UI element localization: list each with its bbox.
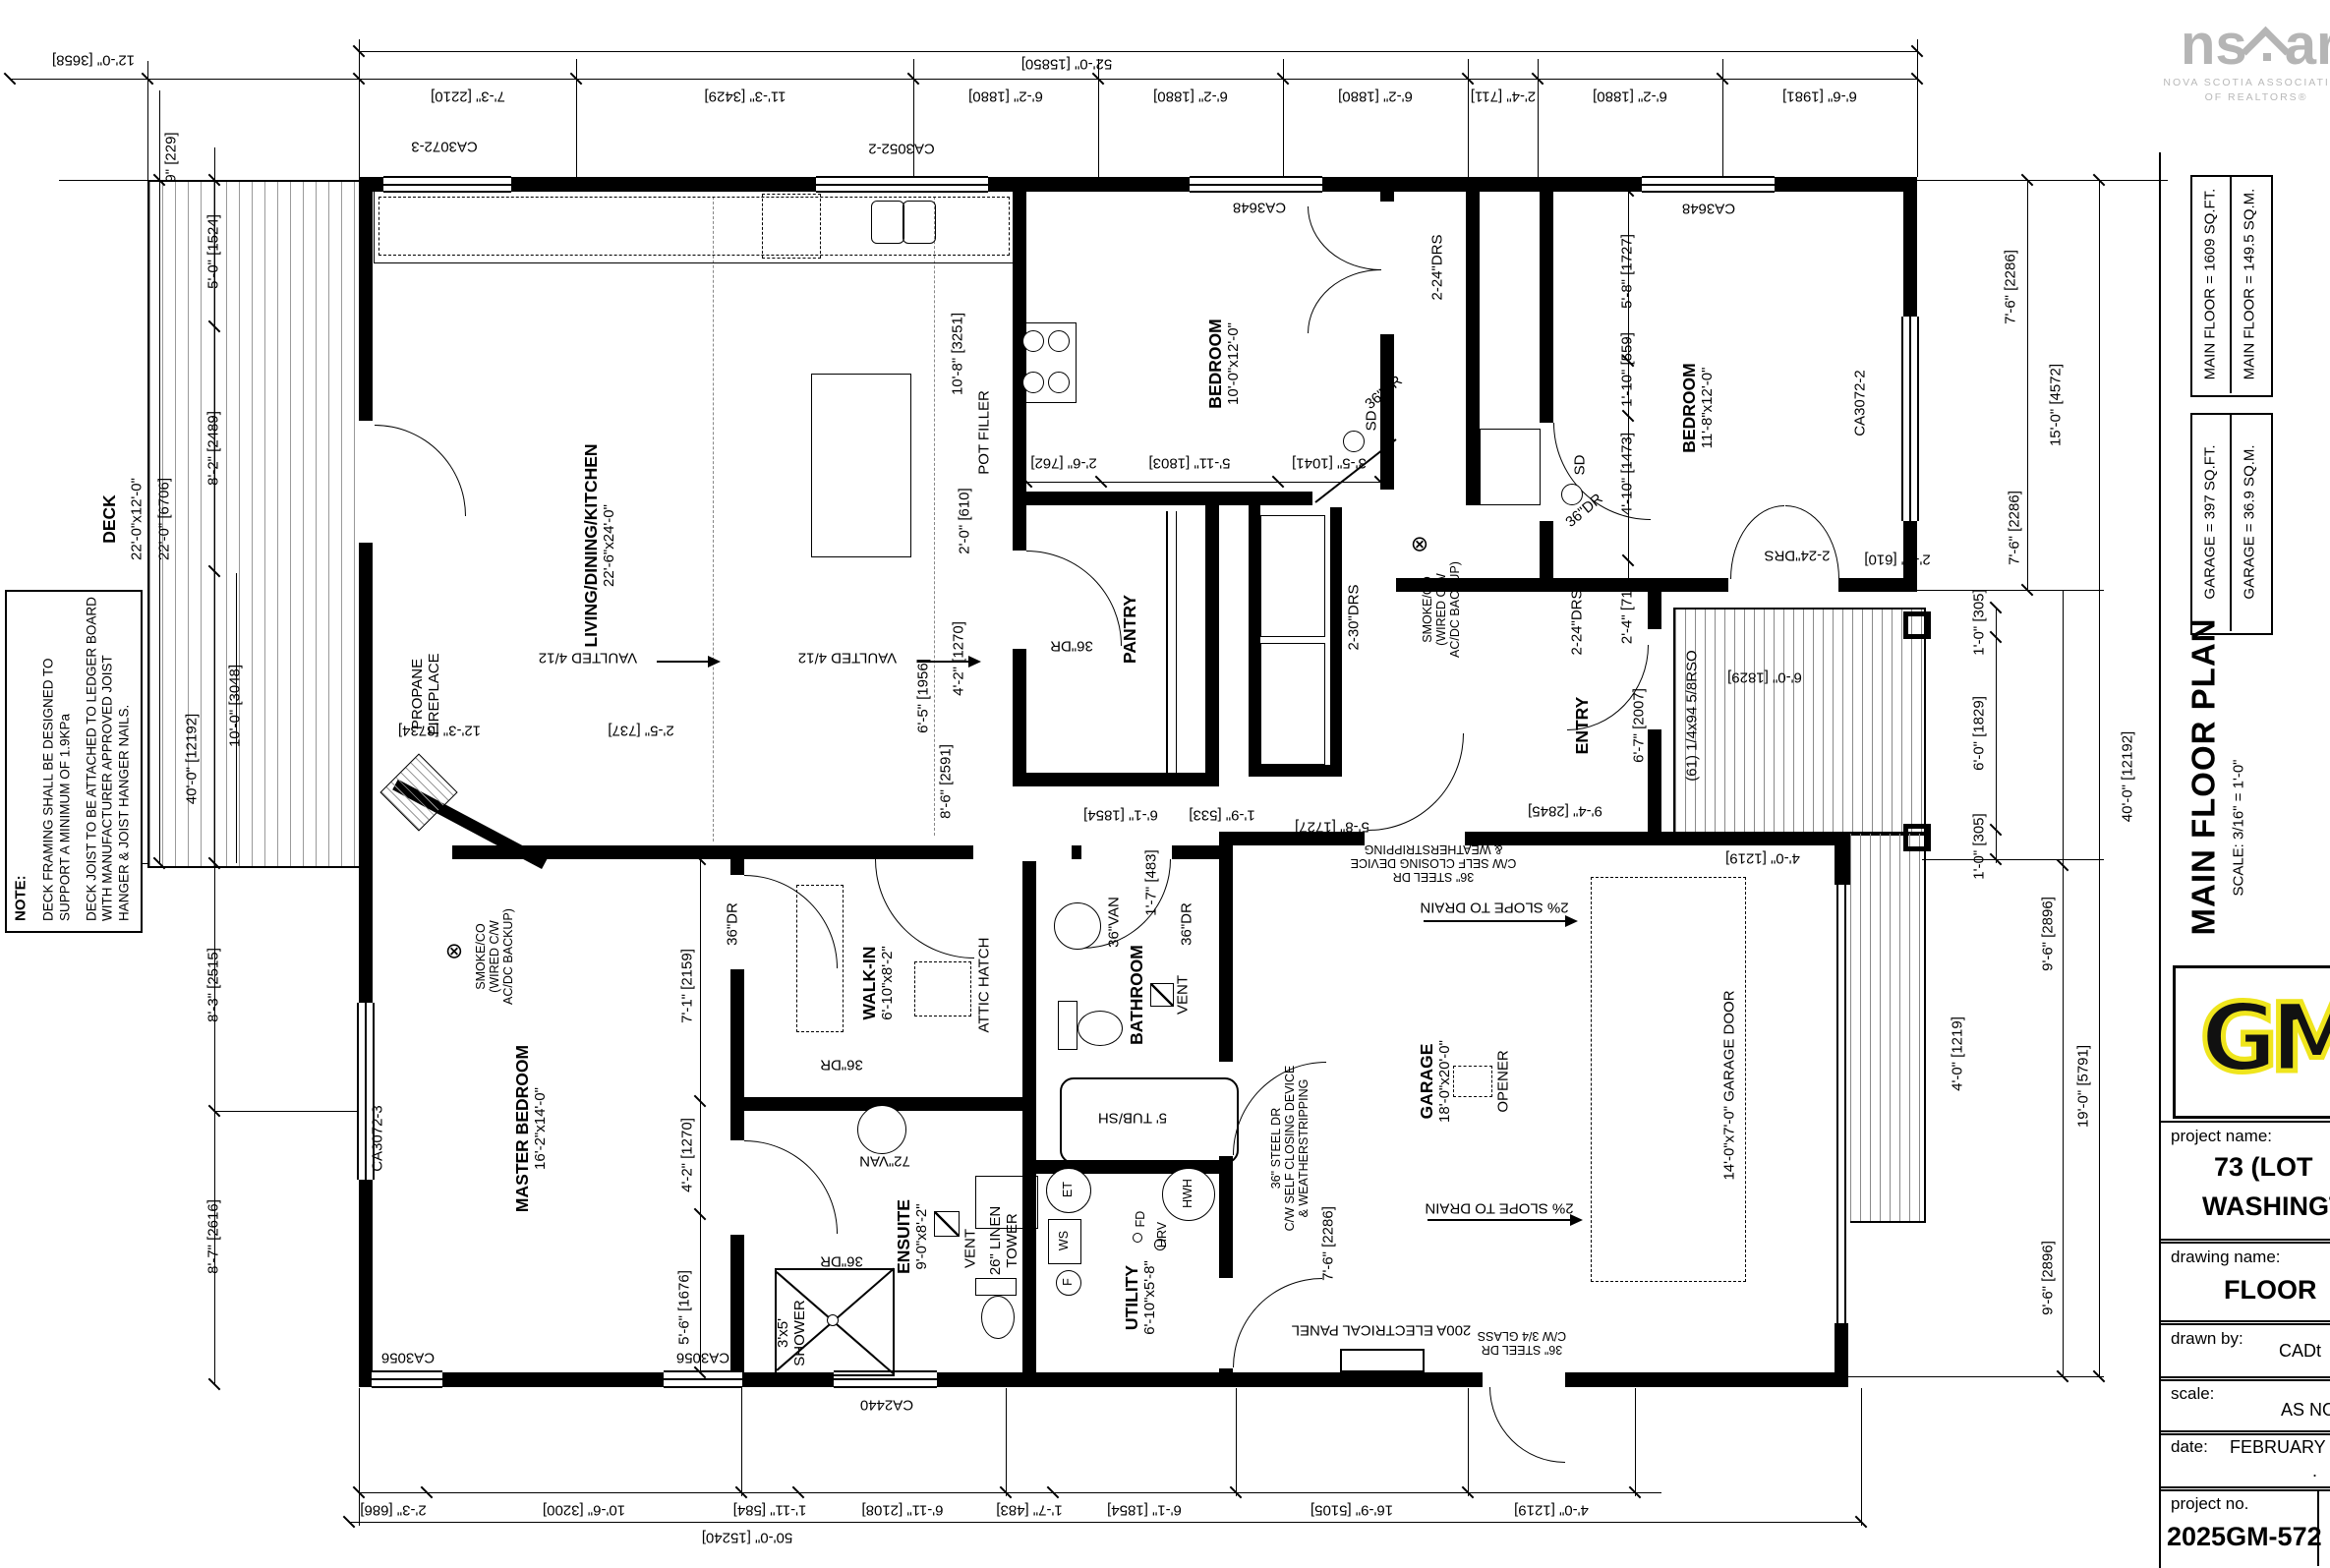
room-label-garage: GARAGE18'-0"x20'-0"	[1418, 1040, 1453, 1123]
dim-right: 15'-0" [4572]	[2049, 364, 2066, 446]
ensuite-vent-fan	[934, 1211, 960, 1237]
project-name-value: 73 (LOT	[2214, 1152, 2313, 1183]
ensuite-toilet-bowl	[981, 1296, 1015, 1339]
window-label: CA3072-3	[371, 1105, 387, 1172]
ext-line	[1468, 1388, 1469, 1496]
dim-top-overall: 52'-0" [15850]	[1021, 55, 1112, 72]
steel-door-glass-label: 36" STEEL DRC/W 3/4 GLASS	[1478, 1329, 1566, 1357]
ext-line	[59, 180, 147, 181]
dim-int: 6'-5" [1956]	[916, 659, 933, 733]
bed2-closet-door	[1730, 505, 1784, 579]
dim-right: 19'-0" [5791]	[2076, 1045, 2093, 1128]
wall-closet30-s	[1249, 765, 1342, 777]
pantry-shelf	[1176, 511, 1177, 773]
vanity-label: 72"VAN	[859, 1152, 910, 1169]
dim-int: 4'-2" [1270]	[952, 621, 968, 696]
opener-label: OPENER	[1496, 1050, 1513, 1112]
fireplace-label: PROPANEFIREPLACE	[410, 653, 443, 734]
door-label-36dr: 36"DR	[726, 902, 742, 946]
wall-pantry-east	[1205, 505, 1219, 786]
tub-label: 5' TUB/SH	[1098, 1109, 1167, 1126]
dim-porch: 6'-0" [1829]	[1727, 668, 1802, 685]
dim-top-seg: 6'-2" [1880]	[1153, 87, 1228, 104]
wall-bottom	[359, 1372, 1848, 1387]
door-label-224drs: 2-24"DRS	[1764, 547, 1830, 563]
garage-man-door-swing	[1489, 1387, 1565, 1463]
door-label-16dr: 16"DR	[1467, 389, 1484, 433]
area-main-sqm: MAIN FLOOR = 149.5 SQ.M.	[2243, 189, 2259, 380]
room-label-master: MASTER BEDROOM16'-2"x14'-0"	[513, 1045, 549, 1212]
house-roof-icon	[2244, 24, 2288, 67]
dim-line	[1996, 608, 1997, 863]
ext-line	[1922, 859, 2104, 860]
fireplace	[379, 753, 457, 831]
dim-right: 9'-6" [2896]	[2041, 1241, 2058, 1315]
linen-tower-label: 26" LINENTOWER	[988, 1206, 1021, 1275]
dim-int: 2'-6" [762]	[1030, 454, 1096, 471]
dim-int: 7'-1" [2159]	[680, 949, 697, 1023]
dim-int: 6'-7" [2007]	[1632, 688, 1649, 763]
vault-line	[713, 197, 714, 842]
bathroom-toilet-bowl	[1078, 1011, 1123, 1046]
window-ca3648-bed1	[1190, 176, 1322, 193]
steel-door-label: 36" STEEL DRC/W SELF CLOSING DEVICE& WEA…	[1269, 1066, 1311, 1232]
deck-note: NOTE: DECK FRAMING SHALL BE DESIGNED TO …	[12, 597, 133, 921]
nsar-logo: ns ar	[2181, 12, 2330, 78]
door-label-36dr: 36"DR	[1180, 902, 1196, 946]
master-door-swing	[875, 859, 974, 958]
ext-line	[1236, 1388, 1237, 1496]
dim-right: 4'-0" [1219]	[1951, 1016, 1967, 1091]
dim-left: 40'-0" [12192]	[185, 714, 202, 804]
window-ca3056-a	[372, 1370, 442, 1388]
dim-int: 2'-0" [610]	[958, 488, 974, 553]
project-name-label: project name:	[2171, 1127, 2272, 1146]
garage-opener	[1453, 1066, 1492, 1097]
dim-int: 3'-5" [1041]	[1292, 454, 1367, 471]
window-label: CA3648	[1233, 199, 1286, 215]
smoke-detector	[1343, 431, 1365, 452]
gm-logo: GM	[2200, 983, 2330, 1093]
dim-bottom-seg: 1'-7" [483]	[996, 1501, 1062, 1518]
door-label-224drs: 2-24"DRS	[1430, 234, 1447, 300]
vaulted-arrow	[968, 656, 981, 668]
closet30-shelf	[1260, 643, 1325, 765]
walkin-rod	[796, 885, 844, 1032]
porch-post	[1903, 824, 1931, 851]
burner	[1022, 330, 1044, 352]
dim-int: 2'-0" [610]	[1864, 551, 1930, 567]
deck-hatch	[147, 180, 364, 868]
ensuite-door-swing	[744, 1140, 838, 1234]
vaulted-arrow-line	[917, 661, 968, 663]
room-label-bedroom1: BEDROOM10'-0"x12'-0"	[1206, 319, 1242, 408]
sd-label: SD	[1365, 411, 1381, 432]
dim-bottom-seg: 1'-11" [584]	[733, 1501, 807, 1518]
bed1-closet-door	[1308, 269, 1381, 333]
kitchen-sink	[903, 201, 936, 244]
sheet-title: MAIN FLOOR PLAN	[2186, 618, 2223, 936]
dim-bottom-seg: 6'-1" [1854]	[1107, 1501, 1182, 1518]
dim-right: 9'-6" [2896]	[2041, 897, 2058, 971]
burner	[1048, 372, 1070, 393]
slope-arrow	[1570, 1214, 1583, 1226]
dim-int: 6'-1" [1854]	[1083, 806, 1158, 823]
ext-line	[214, 1111, 359, 1112]
ext-line	[1006, 1388, 1007, 1496]
dim-int: 1'-7" [483]	[1144, 849, 1161, 915]
room-label-utility: UTILITY6'-10"x5'-8"	[1123, 1260, 1158, 1335]
area-box-divider	[2230, 175, 2232, 393]
dim-right-porch: 1'-0" [305]	[1972, 813, 1989, 879]
room-label-ensuite: ENSUITE9'-0"x8'-2"	[895, 1199, 930, 1274]
wall-walkin-bath	[1022, 859, 1036, 1372]
dim-porch: 4'-0" [1219]	[1725, 849, 1800, 866]
garage-door-opening	[1833, 885, 1850, 1323]
dim-top-seg: 2'-4" [711]	[1471, 87, 1536, 104]
dim-int: 4'-10" [1473]	[1620, 433, 1637, 515]
dim-left: 10'-0" [3048]	[228, 665, 245, 747]
ext-line	[359, 39, 360, 177]
ext-line	[1861, 1388, 1862, 1526]
vanity-label: 36"VAN	[1107, 897, 1124, 948]
dim-top-seg: 6'-2" [1880]	[1338, 87, 1413, 104]
dim-bottom-seg: 2'-3" [686]	[360, 1501, 426, 1518]
ws-label: WS	[1057, 1231, 1071, 1250]
room-label-walkin: WALK-IN6'-10"x8'-2"	[860, 946, 896, 1020]
vent-label: VENT	[963, 1229, 980, 1268]
window-label: CA3072-2	[1853, 370, 1870, 436]
hrv-label: HRV	[1155, 1222, 1169, 1248]
porch-post	[1903, 611, 1931, 639]
wall-closet30-w	[1249, 505, 1260, 777]
bathroom-sink	[1054, 902, 1101, 950]
bathroom-toilet-tank	[1058, 1001, 1078, 1050]
burner	[1048, 330, 1070, 352]
closet30-shelf	[1260, 515, 1325, 637]
dim-int: 10'-8" [3251]	[951, 313, 967, 395]
date-dot: .	[2312, 1461, 2317, 1481]
area-main-sqft: MAIN FLOOR = 1609 SQ.FT.	[2203, 189, 2220, 380]
slope-arrow-line	[1427, 1219, 1570, 1221]
area-garage-sqm: GARAGE = 36.9 SQ.M.	[2243, 444, 2259, 599]
deck-door-swing	[375, 425, 466, 516]
vaulted-arrow	[708, 656, 721, 668]
dim-int: 5'-8" [1727]	[1620, 234, 1637, 309]
project-no-label: project no.	[2171, 1494, 2248, 1514]
dim-bottom-seg: 6'-11" [2108]	[862, 1501, 944, 1518]
dim-right: 7'-6" [2286]	[2004, 250, 2020, 324]
door-label-36dr: 36"DR	[820, 1056, 863, 1073]
garage-door-label: 14'-0"x7'-0" GARAGE DOOR	[1722, 990, 1739, 1180]
dim-left: 8'-7" [2616]	[206, 1199, 223, 1274]
utility-garage-door-opening	[1217, 1278, 1235, 1368]
window-label: CA3648	[1682, 200, 1735, 216]
steel-door-label: 36" STEEL DRC/W SELF CLOSING DEVICE& WEA…	[1351, 842, 1517, 884]
vaulted-label: VAULTED 4/12	[798, 649, 897, 666]
dim-int: 7'-6" [2286]	[1321, 1206, 1338, 1281]
smoke-co-label: SMOKE/CO(WIRED C/WAC/DC BACKUP)	[1421, 561, 1462, 658]
slope-arrow-line	[1424, 920, 1565, 922]
ext-line	[1917, 39, 1918, 177]
drawn-by-value: CADt	[2279, 1341, 2321, 1362]
bathroom-vent-fan	[1150, 983, 1174, 1007]
dim-line	[1026, 482, 1380, 483]
et-label: ET	[1061, 1182, 1075, 1197]
floor-plan-sheet: 52'-0" [15850] 12'-0" [3658] 7'-3" [2210…	[0, 0, 2330, 1568]
window-ca3072-2	[1901, 317, 1919, 521]
dim-int: 1'-10" [559]	[1620, 332, 1637, 407]
room-label-deck: DECK	[100, 494, 120, 544]
room-label-bedroom2: BEDROOM11'-8"x12'-0"	[1680, 363, 1716, 452]
vaulted-arrow-line	[657, 661, 708, 663]
garage-hall-door-swing	[1369, 733, 1464, 831]
dim-left: 9" [229]	[164, 132, 181, 182]
date-value: FEBRUARY	[2230, 1437, 2326, 1458]
dim-right: 7'-6" [2286]	[2008, 491, 2024, 565]
ext-line	[1917, 180, 2168, 181]
f-label: F	[1061, 1278, 1075, 1286]
ensuite-toilet-tank	[975, 1278, 1017, 1296]
electrical-panel	[1340, 1349, 1425, 1372]
dim-int: 5'-6" [1676]	[677, 1270, 694, 1345]
master-door-opening	[973, 843, 1072, 861]
door-label-36dr: 36"DR	[1050, 637, 1093, 654]
dim-int: 1'-9" [533]	[1189, 806, 1254, 823]
dim-line	[2063, 590, 2064, 1376]
area-garage-sqft: GARAGE = 397 SQ.FT.	[2203, 444, 2220, 599]
pantry-door-swing	[1026, 551, 1122, 646]
room-label-bathroom: BATHROOM	[1128, 945, 1147, 1045]
dim-int: 5'-11" [1803]	[1149, 454, 1231, 471]
dim-left: 8'-3" [2515]	[206, 948, 223, 1022]
window-ca3648-bed2	[1642, 176, 1775, 193]
drawing-name-label: drawing name:	[2171, 1248, 2281, 1267]
vent-label: VENT	[1176, 975, 1193, 1015]
window-label: CA3056	[676, 1349, 729, 1365]
dim-left: 22'-0" [6706]	[157, 478, 174, 560]
garage-door-panel	[1844, 885, 1846, 1323]
dim-bottom-seg: 10'-6" [3200]	[543, 1501, 625, 1518]
porch-hatch-side	[1848, 832, 1926, 1223]
kitchen-sink	[871, 201, 904, 244]
slope-label: 2% SLOPE TO DRAIN	[1420, 899, 1568, 915]
sd-label: SD	[1573, 455, 1590, 476]
dim-line	[2027, 180, 2028, 590]
date-label: date:	[2171, 1437, 2208, 1457]
wall-left	[359, 177, 373, 1386]
dim-top-seg: 11'-3" [3429]	[705, 87, 786, 104]
electrical-panel-label: 200A ELECTRICAL PANEL	[1292, 1321, 1472, 1338]
room-label-entry: ENTRY	[1573, 697, 1593, 755]
dim-top-deck: 12'-0" [3658]	[52, 51, 135, 68]
sheet-scale: SCALE: 3/16" = 1'-0"	[2232, 759, 2248, 896]
nsar-logo-ns: ns	[2181, 12, 2247, 78]
bed1-closet-door	[1308, 206, 1381, 270]
dim-line	[700, 859, 701, 1372]
dim-line	[2099, 180, 2100, 1376]
dim-bottom-overall: 50'-0" [15240]	[702, 1529, 792, 1545]
attic-hatch	[914, 961, 971, 1016]
pantry-shelf	[1166, 511, 1168, 773]
dim-bottom-seg: 4'-0" [1219]	[1514, 1501, 1589, 1518]
project-name-value: WASHINGTO	[2202, 1191, 2330, 1222]
dim-right-porch: 1'-0" [305]	[1972, 589, 1989, 655]
dim-right: 40'-0" [12192]	[2121, 731, 2137, 822]
dim-int: 8'-6" [2591]	[939, 744, 956, 819]
deck-door-opening	[357, 421, 375, 543]
drawing-name-value: FLOOR	[2224, 1275, 2317, 1306]
dim-top-seg: 7'-3" [2210]	[431, 87, 505, 104]
dim-top-seg: 6'-6" [1981]	[1782, 87, 1857, 104]
dim-int: 9'-4" [2845]	[1528, 802, 1602, 819]
vaulted-label: VAULTED 4/12	[539, 649, 637, 666]
scale-label: scale:	[2171, 1384, 2214, 1404]
pot-filler-label: POT FILLER	[977, 390, 994, 475]
dim-int: 2'-4" [711]	[1620, 579, 1637, 644]
ext-line	[1635, 1388, 1636, 1496]
door-label-36dr: 36"DR	[820, 1252, 863, 1269]
garage-man-door-opening	[1483, 1370, 1565, 1388]
dim-line	[359, 51, 1917, 52]
garage-door-panel	[1836, 885, 1838, 1323]
bed2-closet-door	[1785, 505, 1839, 579]
titleblock-divider	[2317, 1489, 2319, 1566]
dim-int: 4'-2" [1270]	[680, 1118, 697, 1192]
window-label: CA3072-3	[411, 138, 478, 154]
fridge	[762, 194, 821, 259]
dim-int: (61) 1/4x94 5/8RSO	[1685, 650, 1702, 781]
dim-bottom-seg: 16'-9" [5105]	[1311, 1501, 1393, 1518]
dim-line	[349, 1522, 1861, 1523]
room-label-pantry: PANTRY	[1121, 595, 1140, 664]
ext-line	[1917, 590, 2104, 591]
shower-label: 3'x5'SHOWER	[776, 1300, 809, 1366]
wall-bed1-closet-e	[1466, 177, 1480, 505]
fd-label: FD	[1134, 1211, 1147, 1228]
dim-int: 5'-8" [1727]	[1295, 818, 1369, 835]
door-label-224drs: 2-24"DRS	[1570, 589, 1587, 655]
dim-line	[10, 79, 1917, 80]
kitchen-island	[811, 374, 911, 557]
room-size-deck: 22'-0"x12'-0"	[130, 478, 146, 560]
vault-line	[934, 197, 935, 836]
scale-value: AS NO	[2281, 1400, 2330, 1421]
slope-label: 2% SLOPE TO DRAIN	[1425, 1199, 1573, 1216]
floor-drain	[1133, 1233, 1142, 1243]
nsar-logo-ar: ar	[2285, 12, 2330, 78]
dim-left: 8'-2" [2489]	[206, 411, 223, 486]
window-label: CA3052-2	[868, 140, 935, 156]
smoke-co-symbol: ⊗	[445, 940, 463, 964]
ext-line	[741, 1388, 742, 1496]
shower-drain	[827, 1314, 839, 1326]
burner	[1022, 372, 1044, 393]
linen-closet-16	[1480, 429, 1541, 505]
wall-closet30-e	[1330, 505, 1342, 777]
porch-hatch-front	[1673, 608, 1926, 836]
nsar-caption: NOVA SCOTIA ASSOCIATION	[2163, 77, 2330, 88]
room-label-living: LIVING/DINING/KITCHEN22'-6"x24'-0"	[582, 443, 617, 647]
nsar-caption: OF REALTORS®	[2205, 91, 2308, 103]
window-label: CA3056	[381, 1349, 435, 1365]
wall-pantry-south	[1013, 773, 1219, 786]
slope-arrow	[1565, 915, 1578, 927]
hwh-label: HWH	[1181, 1179, 1194, 1208]
attic-hatch-label: ATTIC HATCH	[977, 938, 994, 1033]
smoke-co-symbol: ⊗	[1411, 533, 1428, 557]
smoke-co-label: SMOKE/CO(WIRED C/WAC/DC BACKUP)	[474, 908, 515, 1005]
project-no-value: 2025GM-572	[2167, 1522, 2322, 1552]
dim-right-porch: 6'-0" [1829]	[1972, 696, 1989, 771]
dim-top-seg: 6'-2" [1880]	[968, 87, 1043, 104]
ensuite-sink	[857, 1105, 906, 1154]
dim-top-seg: 6'-2" [1880]	[1593, 87, 1667, 104]
area-box-divider	[2230, 413, 2232, 631]
dim-int: 2'-5" [737]	[608, 722, 673, 738]
wall-bed2-west	[1540, 177, 1553, 592]
door-label-230drs: 2-30"DRS	[1347, 584, 1364, 650]
window-label: CA2440	[860, 1396, 913, 1413]
dim-left: 5'-0" [1524]	[206, 214, 223, 289]
drawn-by-label: drawn by:	[2171, 1329, 2243, 1349]
